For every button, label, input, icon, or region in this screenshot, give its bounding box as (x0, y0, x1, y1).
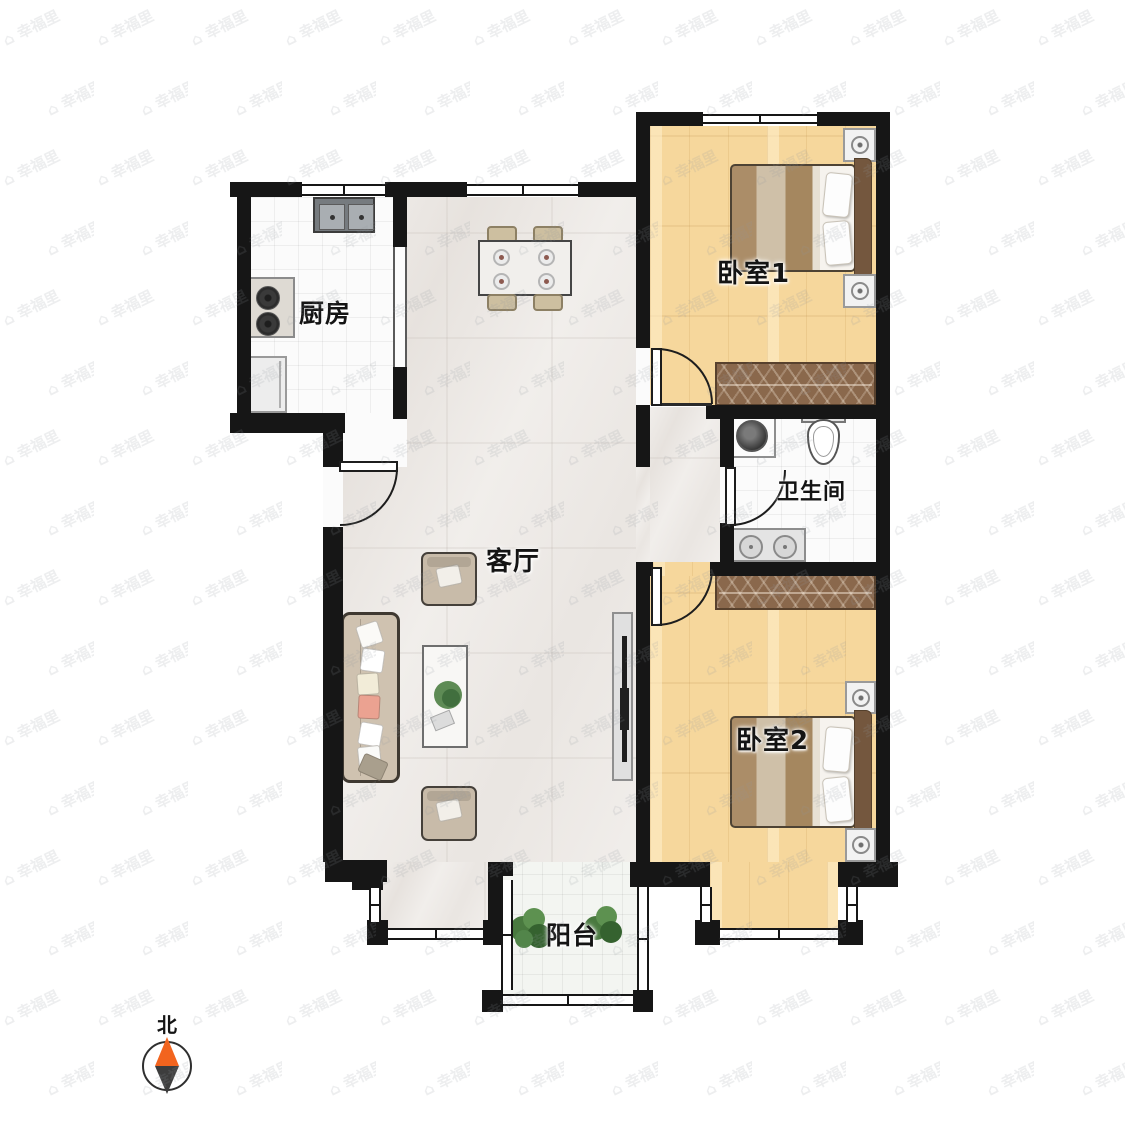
bedroom1-label: 卧室1 (717, 253, 790, 290)
window (846, 887, 858, 922)
sofa-pillow (356, 672, 379, 695)
wall (323, 433, 343, 467)
wall (393, 367, 407, 419)
plate (493, 249, 510, 266)
wall (393, 182, 407, 247)
bedroom1-door-gap (636, 348, 650, 405)
sofa (341, 612, 400, 783)
wardrobe-bedroom2 (715, 574, 876, 610)
living-room-label: 客厅 (486, 541, 540, 578)
sofa-pillow (357, 694, 380, 719)
hallway-floor (650, 407, 720, 562)
wall (367, 920, 388, 945)
stove-burner-top (256, 286, 280, 310)
bedroom1-door-threshold (652, 403, 712, 406)
kitchen-opening (393, 247, 407, 367)
kitchen-sink (313, 197, 375, 233)
wardrobe-bedroom1 (715, 362, 876, 406)
dining-chair (487, 294, 517, 311)
nightstand (845, 828, 876, 862)
sofa-pillow (357, 753, 389, 782)
vanity-basin (773, 535, 797, 559)
window (467, 184, 578, 196)
sofa-pillow (360, 648, 386, 674)
sink-basin-right (348, 204, 374, 230)
wall (838, 920, 863, 945)
wall (633, 990, 653, 1012)
window (637, 887, 649, 990)
tv-center (620, 688, 629, 730)
plate (538, 249, 555, 266)
window (503, 994, 633, 1006)
wall (636, 405, 650, 467)
window (388, 928, 483, 940)
plate (538, 273, 555, 290)
headboard (854, 710, 872, 834)
window (720, 928, 838, 940)
plate (493, 273, 510, 290)
vanity-basin (739, 535, 763, 559)
compass-icon (143, 1037, 191, 1094)
compass-north-label: 北 (157, 1009, 178, 1038)
window (700, 887, 712, 922)
window (369, 888, 381, 922)
dining-table (478, 240, 572, 296)
living-bay-window-floor (381, 862, 488, 928)
flower-decor (442, 689, 460, 707)
balcony-label: 阳台 (546, 916, 598, 952)
floorplan-canvas: 厨房 客厅 卧室1 卫生间 卧室2 阳台 北 ⌂ 幸福里 ⌂ 幸福里 (0, 0, 1125, 1125)
hallway-opening-floor (636, 467, 650, 562)
bedroom2-label: 卧室2 (736, 720, 809, 757)
window (703, 114, 817, 124)
bedroom2-door-threshold-floor (653, 562, 710, 576)
bed-pillow (822, 726, 853, 773)
armchair (421, 786, 477, 841)
entry-nook-floor (343, 413, 407, 467)
wall (352, 862, 383, 890)
magazine (430, 710, 455, 732)
wall (720, 405, 734, 467)
armchair (421, 552, 477, 606)
sofa-pillow (357, 721, 384, 748)
wall (482, 990, 503, 1012)
bathroom-door-gap (720, 467, 734, 523)
wall (237, 182, 251, 433)
coffee-table (422, 645, 468, 748)
bed-pillow (822, 776, 854, 824)
wall (876, 112, 890, 887)
wall (483, 920, 503, 945)
wall (720, 523, 734, 566)
entry-door-gap (323, 463, 343, 527)
wall (695, 920, 720, 945)
nightstand (843, 274, 876, 308)
window (302, 184, 385, 196)
wall (636, 562, 650, 862)
bed-pillow (822, 220, 853, 266)
wall (630, 862, 710, 887)
sink-basin-left (319, 204, 345, 230)
wall (323, 527, 343, 862)
washer-drum (736, 420, 768, 452)
bed-pillow (822, 172, 853, 219)
wall (636, 112, 650, 348)
kitchen-label: 厨房 (299, 294, 351, 330)
armchair-pillow (435, 798, 463, 823)
sofa-pillow (355, 620, 384, 649)
dining-chair (533, 294, 563, 311)
bedroom2-bay-window-floor (710, 862, 838, 928)
tv-stand (612, 612, 633, 781)
stove-burner-bottom (256, 312, 280, 336)
nightstand (843, 128, 876, 162)
window (501, 880, 513, 990)
bathroom-vanity (729, 528, 806, 562)
bathroom-label: 卫生间 (777, 474, 846, 506)
armchair-pillow (435, 564, 463, 589)
wall (710, 562, 890, 576)
headboard (854, 158, 872, 278)
